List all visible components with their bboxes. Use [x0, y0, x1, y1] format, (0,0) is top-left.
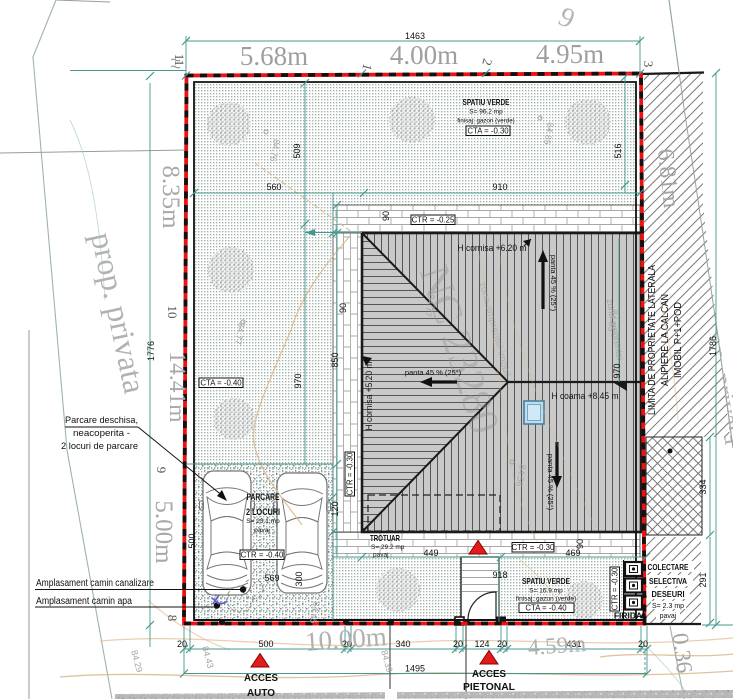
svg-text:SPATIU VERDE: SPATIU VERDE — [522, 577, 571, 586]
svg-text:SELECTIVA: SELECTIVA — [649, 577, 687, 586]
svg-text:124: 124 — [474, 639, 489, 649]
svg-text:4.95m: 4.95m — [536, 39, 604, 69]
svg-text:PIETONAL: PIETONAL — [463, 681, 516, 693]
svg-text:1495: 1495 — [405, 664, 425, 674]
svg-text:9: 9 — [154, 467, 169, 474]
svg-text:CTR = -0.30: CTR = -0.30 — [346, 452, 355, 495]
svg-text:panta 45 % (25°): panta 45 % (25°) — [546, 454, 555, 511]
svg-text:neacoperita -: neacoperita - — [73, 428, 130, 439]
svg-text:560: 560 — [266, 182, 281, 192]
svg-text:300: 300 — [294, 571, 304, 586]
svg-text:CTR = -0.40: CTR = -0.40 — [241, 551, 284, 560]
svg-text:500: 500 — [187, 533, 197, 548]
svg-text:569: 569 — [264, 573, 279, 583]
svg-text:516: 516 — [613, 143, 623, 158]
svg-text:918: 918 — [492, 570, 507, 580]
svg-text:CTR = -0.30: CTR = -0.30 — [611, 567, 620, 610]
svg-text:5.00m: 5.00m — [150, 500, 177, 564]
svg-text:2 LOCURI: 2 LOCURI — [246, 507, 280, 517]
svg-text:SPATIU VERDE: SPATIU VERDE — [463, 97, 510, 107]
svg-text:90: 90 — [381, 211, 391, 221]
svg-text:Parcare deschisa,: Parcare deschisa, — [65, 415, 138, 426]
svg-text:Amplasament camin apa: Amplasament camin apa — [36, 596, 132, 607]
svg-text:panta 45 % (25°): panta 45 % (25°) — [549, 255, 558, 312]
svg-text:panta 45 % (25°): panta 45 % (25°) — [405, 368, 462, 377]
svg-text:340: 340 — [395, 639, 410, 649]
svg-text:finisaj: gazon (verde): finisaj: gazon (verde) — [457, 118, 514, 125]
svg-text:CTA = -0.40: CTA = -0.40 — [200, 379, 242, 388]
svg-text:CTR = -0.25: CTR = -0.25 — [412, 216, 455, 225]
svg-text:970: 970 — [293, 373, 303, 388]
svg-text:4.00m: 4.00m — [390, 40, 458, 70]
svg-text:8: 8 — [165, 615, 180, 622]
svg-text:ACCES: ACCES — [244, 672, 278, 684]
svg-text:20: 20 — [497, 639, 507, 649]
svg-text:970: 970 — [612, 363, 622, 378]
svg-text:S= 29.2 mp: S= 29.2 mp — [371, 544, 405, 551]
svg-text:S= 96.2 mp: S= 96.2 mp — [469, 109, 503, 116]
svg-text:pavaj: pavaj — [254, 527, 270, 534]
svg-text:3: 3 — [641, 61, 656, 68]
svg-text:120: 120 — [330, 501, 340, 516]
svg-text:pavaj: pavaj — [373, 552, 389, 559]
svg-text:CTA = -0.40: CTA = -0.40 — [525, 604, 567, 613]
svg-text:DESEURI: DESEURI — [652, 590, 685, 599]
svg-text:S= 16.9 mp: S= 16.9 mp — [529, 588, 563, 595]
svg-text:1786: 1786 — [708, 336, 718, 356]
svg-text:FIRIDA: FIRIDA — [614, 611, 642, 621]
svg-text:LIMITA DE PROPRIETATE LATERALA: LIMITA DE PROPRIETATE LATERALA — [647, 265, 658, 415]
svg-text:10: 10 — [165, 306, 180, 319]
svg-text:H coama +8.45 m: H coama +8.45 m — [552, 391, 619, 401]
svg-text:850: 850 — [330, 352, 340, 367]
svg-text:20: 20 — [453, 639, 463, 649]
svg-text:20: 20 — [638, 639, 648, 649]
svg-text:4.59m: 4.59m — [527, 631, 587, 660]
svg-text:finisaj: gazon (verde): finisaj: gazon (verde) — [516, 596, 576, 603]
svg-text:334: 334 — [698, 479, 708, 494]
svg-text:469: 469 — [565, 548, 580, 558]
svg-text:910: 910 — [492, 182, 507, 192]
svg-text:PARCARE: PARCARE — [247, 492, 280, 502]
svg-text:90: 90 — [338, 303, 348, 313]
svg-text:10.00m: 10.00m — [304, 621, 388, 657]
svg-text:TROTUAR: TROTUAR — [370, 533, 400, 543]
svg-text:8.35m: 8.35m — [157, 165, 184, 229]
svg-text:S= 2.3 mp: S= 2.3 mp — [652, 603, 684, 610]
svg-text:H cornisa +6.20 m: H cornisa +6.20 m — [458, 243, 527, 253]
svg-text:pavaj: pavaj — [660, 613, 677, 620]
svg-text:Amplasament camin canalizare: Amplasament camin canalizare — [36, 578, 154, 589]
svg-text:20: 20 — [177, 639, 187, 649]
svg-text:H cornisa +5.20 m: H cornisa +5.20 m — [364, 361, 374, 430]
svg-text:CTR = -0.30: CTR = -0.30 — [512, 543, 555, 552]
svg-text:14.41m: 14.41m — [164, 351, 190, 422]
svg-text:IMOBIL P+1+POD: IMOBIL P+1+POD — [673, 302, 684, 378]
svg-text:0.36: 0.36 — [668, 632, 698, 675]
svg-text:449: 449 — [423, 548, 438, 558]
svg-text:500: 500 — [258, 639, 273, 649]
svg-text:CTA = -0.30: CTA = -0.30 — [467, 127, 509, 136]
svg-text:5.68m: 5.68m — [240, 41, 308, 71]
svg-text:S= 23.1 mp: S= 23.1 mp — [246, 518, 280, 525]
svg-text:1776: 1776 — [146, 341, 156, 361]
svg-text:2 locuri de parcare: 2 locuri de parcare — [61, 441, 138, 452]
svg-text:291: 291 — [698, 572, 708, 587]
svg-text:ACCES: ACCES — [472, 668, 506, 680]
svg-text:509: 509 — [292, 143, 302, 158]
svg-text:COLECTARE: COLECTARE — [648, 563, 690, 572]
svg-text:AUTO: AUTO — [247, 687, 275, 699]
